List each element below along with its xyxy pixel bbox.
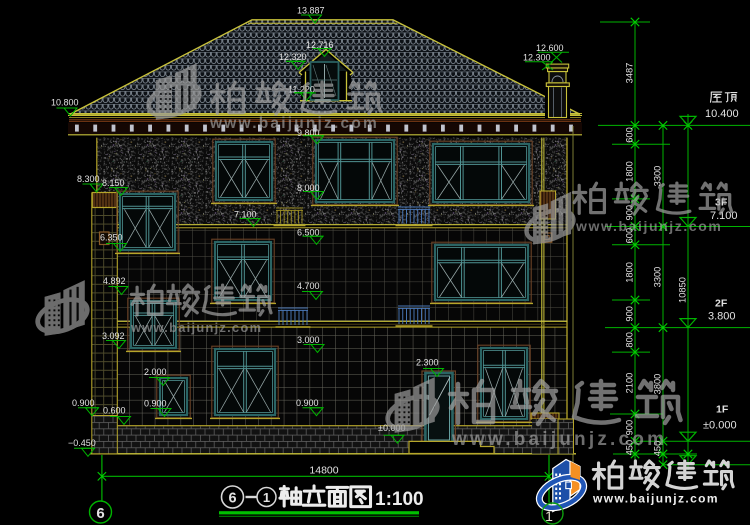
svg-text:±0.000: ±0.000: [703, 420, 737, 432]
svg-text:1: 1: [263, 490, 270, 505]
svg-text:1:100: 1:100: [375, 489, 424, 510]
svg-text:10.400: 10.400: [705, 108, 739, 120]
svg-text:2.300: 2.300: [416, 358, 439, 368]
svg-text:3.000: 3.000: [297, 335, 320, 345]
svg-text:www.baijunjz.com: www.baijunjz.com: [592, 492, 719, 506]
svg-text:1: 1: [545, 508, 553, 524]
svg-text:−0.450: −0.450: [68, 438, 96, 448]
svg-text:2100: 2100: [625, 373, 635, 394]
svg-text:14800: 14800: [309, 465, 338, 477]
svg-text:12.300: 12.300: [523, 53, 551, 63]
svg-text:3300: 3300: [653, 267, 663, 288]
svg-text:0.900: 0.900: [296, 398, 319, 408]
svg-text:6.350: 6.350: [100, 233, 123, 243]
svg-text:8.150: 8.150: [102, 178, 125, 188]
svg-text:600: 600: [625, 127, 635, 143]
svg-text:13.887: 13.887: [297, 6, 325, 16]
svg-text:3800: 3800: [653, 374, 663, 395]
svg-text:0.900: 0.900: [144, 399, 167, 409]
svg-text:3487: 3487: [625, 63, 635, 84]
svg-text:8.300: 8.300: [77, 174, 100, 184]
svg-text:6: 6: [96, 505, 104, 522]
svg-text:www.baijunjz.com: www.baijunjz.com: [575, 218, 722, 234]
svg-text:800: 800: [625, 332, 635, 348]
svg-text:10850: 10850: [678, 277, 688, 303]
svg-text:2.000: 2.000: [144, 367, 167, 377]
svg-text:1800: 1800: [625, 161, 635, 182]
svg-text:www.baijunjz.com: www.baijunjz.com: [209, 115, 379, 132]
svg-text:6: 6: [228, 491, 236, 507]
svg-text:1F: 1F: [716, 404, 729, 416]
svg-text:4.700: 4.700: [297, 281, 320, 291]
svg-text:3.092: 3.092: [102, 331, 125, 341]
svg-text:7.100: 7.100: [234, 209, 257, 219]
svg-text:4.892: 4.892: [103, 276, 126, 286]
svg-text:3300: 3300: [653, 166, 663, 187]
svg-text:12.320: 12.320: [279, 52, 307, 62]
svg-text:10.800: 10.800: [51, 98, 79, 108]
svg-text:1800: 1800: [625, 262, 635, 283]
svg-text:900: 900: [625, 306, 635, 322]
svg-text:www.baijunjz.com: www.baijunjz.com: [130, 320, 262, 335]
svg-text:0.600: 0.600: [103, 406, 126, 416]
svg-text:12.600: 12.600: [536, 43, 564, 53]
svg-text:3.800: 3.800: [708, 311, 736, 323]
svg-text:www.baijunjz.com: www.baijunjz.com: [451, 429, 667, 450]
svg-text:2F: 2F: [715, 298, 728, 310]
svg-text:0.900: 0.900: [72, 398, 95, 408]
